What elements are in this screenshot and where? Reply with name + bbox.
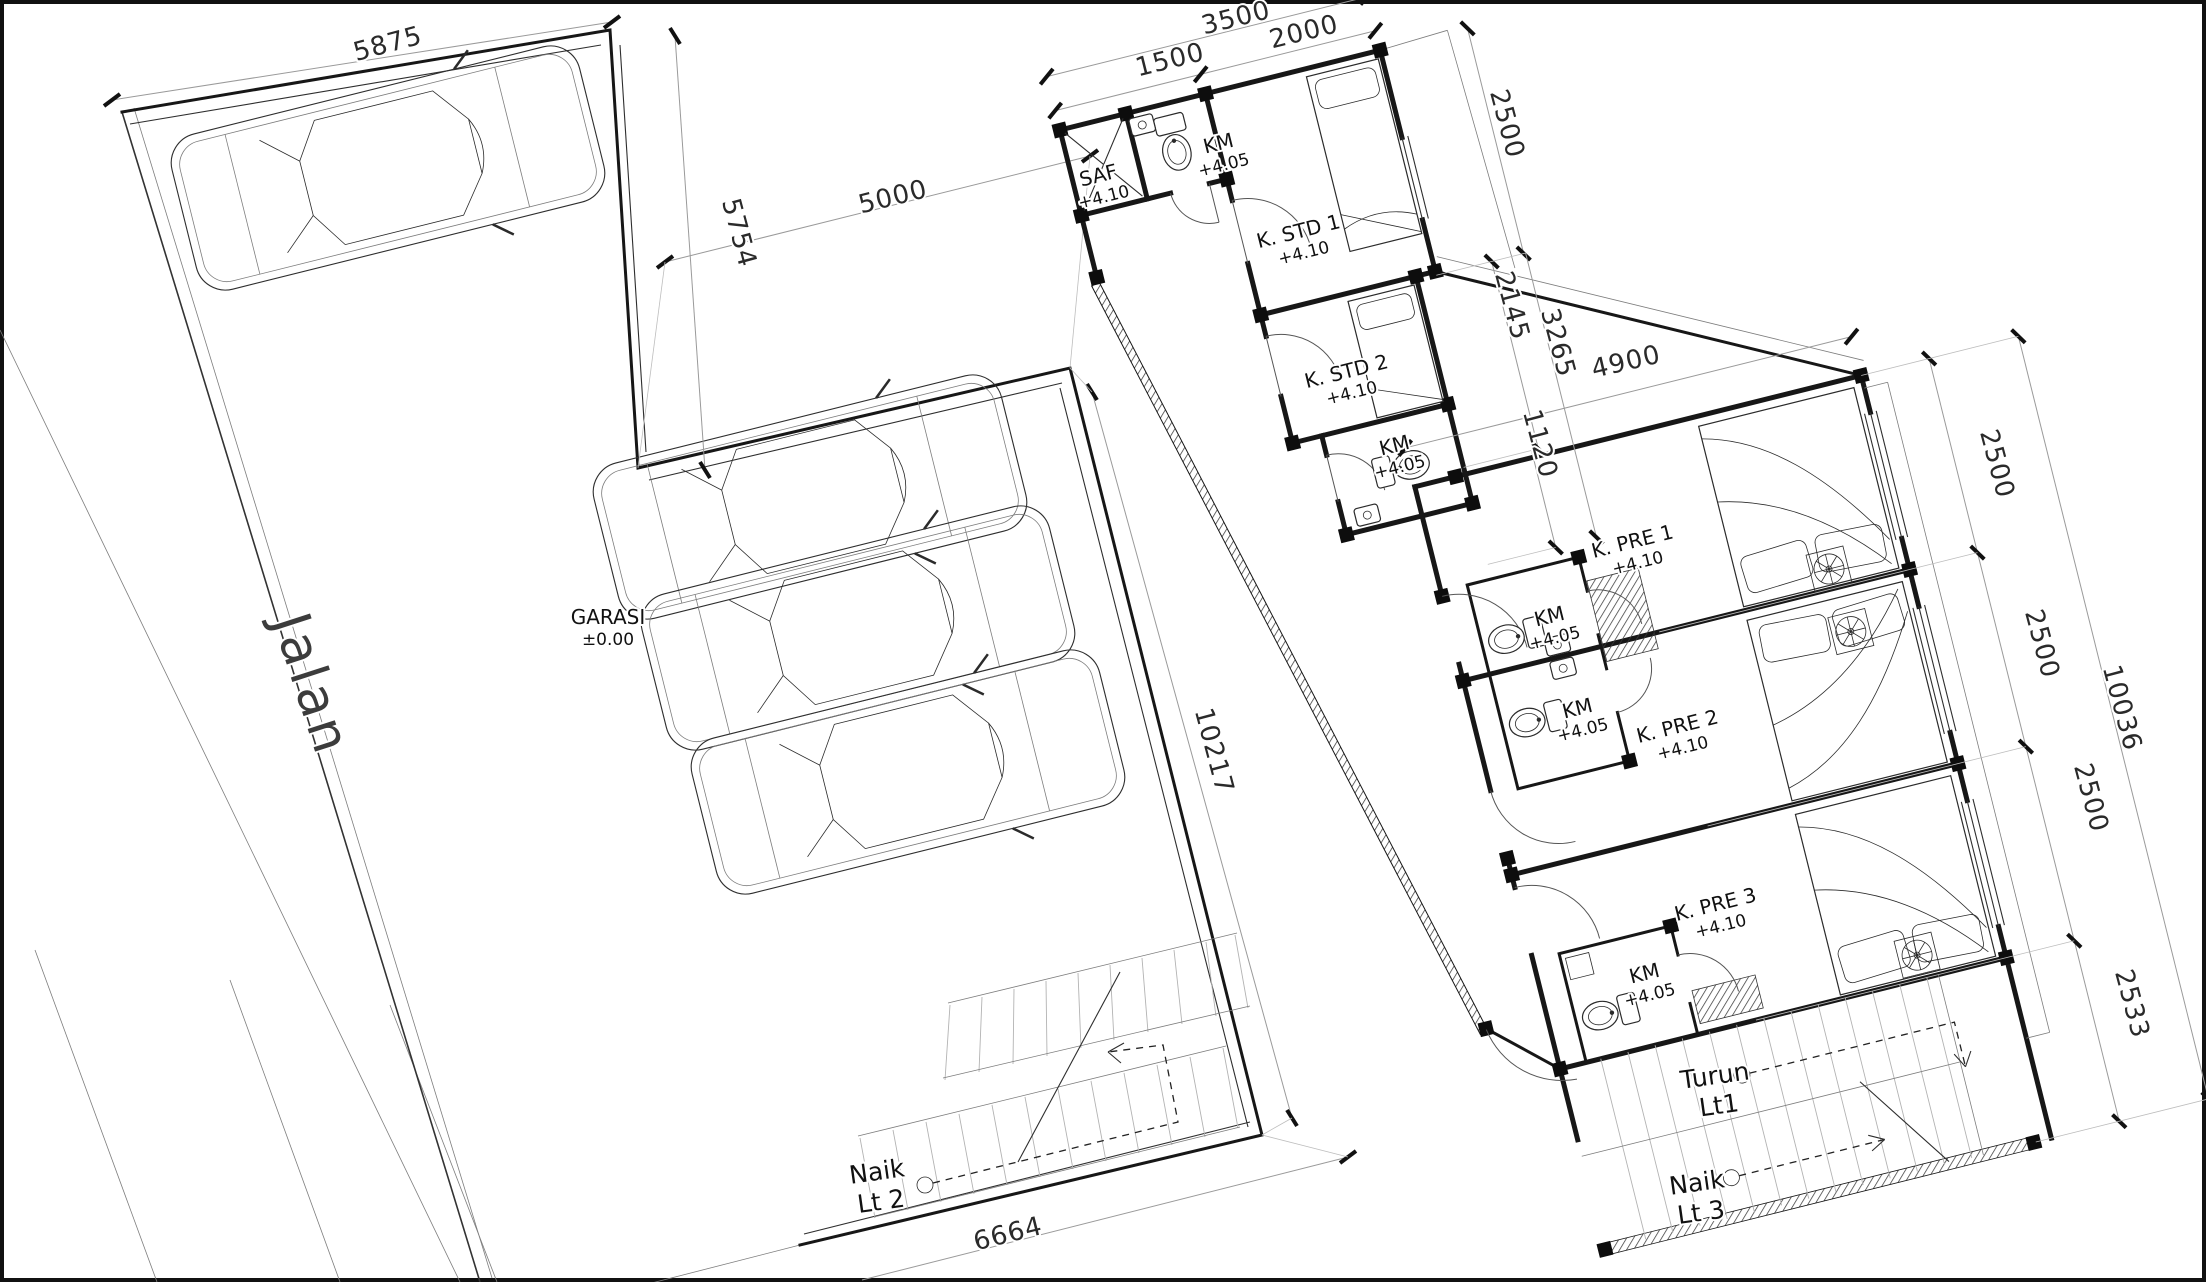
floorplan-canvas: 5875575450001021766641500350020002500214… (0, 0, 2206, 1282)
floorplan-drawing: 5875575450001021766641500350020002500214… (0, 0, 2206, 1282)
